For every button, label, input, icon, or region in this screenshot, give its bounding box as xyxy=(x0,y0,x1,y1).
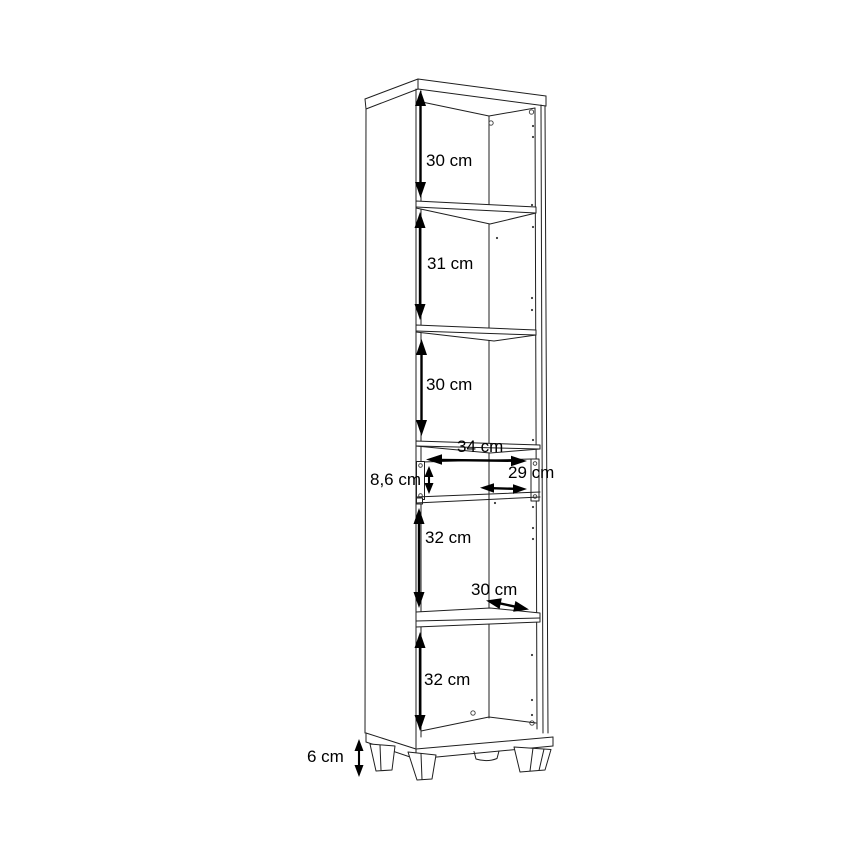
shelf-2 xyxy=(416,325,536,341)
interior-top-edges xyxy=(422,102,535,116)
drawer-bottom-panel xyxy=(416,492,540,503)
dim-label-second-compartment-height: 31 cm xyxy=(427,255,473,273)
dim-label-third-compartment-height: 30 cm xyxy=(426,376,472,394)
dim-label-drawer-front-height: 8,6 cm xyxy=(370,471,421,489)
feet xyxy=(370,744,551,780)
dim-arrow-drawer-inner-width xyxy=(480,483,527,494)
dim-arrow-fourth-compartment-height xyxy=(414,508,425,608)
dim-arrow-drawer-front-height xyxy=(425,466,434,494)
shelf-1 xyxy=(416,201,536,224)
shelf-4 xyxy=(416,608,540,627)
shelf-pin-holes xyxy=(471,110,535,725)
dim-arrow-feet-height xyxy=(355,739,364,777)
diagram-stage: 30 cm 31 cm 30 cm 34 cm 8,6 cm 29 cm 32 … xyxy=(0,0,868,868)
dim-label-feet-height: 6 cm xyxy=(307,748,344,766)
foot-front-left xyxy=(408,752,436,780)
dim-label-top-compartment-height: 30 cm xyxy=(426,152,472,170)
foot-front-right xyxy=(514,747,551,772)
bottom-floor xyxy=(421,717,536,731)
dim-label-fourth-compartment-height: 32 cm xyxy=(425,529,471,547)
carcass-edges xyxy=(365,89,548,748)
dim-label-bottom-compartment-height: 32 cm xyxy=(424,671,470,689)
dim-arrow-top-compartment-height xyxy=(415,90,426,198)
dim-label-shelf-depth: 30 cm xyxy=(471,581,517,599)
dim-label-drawer-inner-width: 29 cm xyxy=(508,464,554,482)
top-panel xyxy=(365,79,546,109)
foot-back-left xyxy=(370,744,395,771)
dim-label-interior-width: 34 cm xyxy=(457,438,503,456)
cabinet-line-drawing xyxy=(0,0,868,868)
